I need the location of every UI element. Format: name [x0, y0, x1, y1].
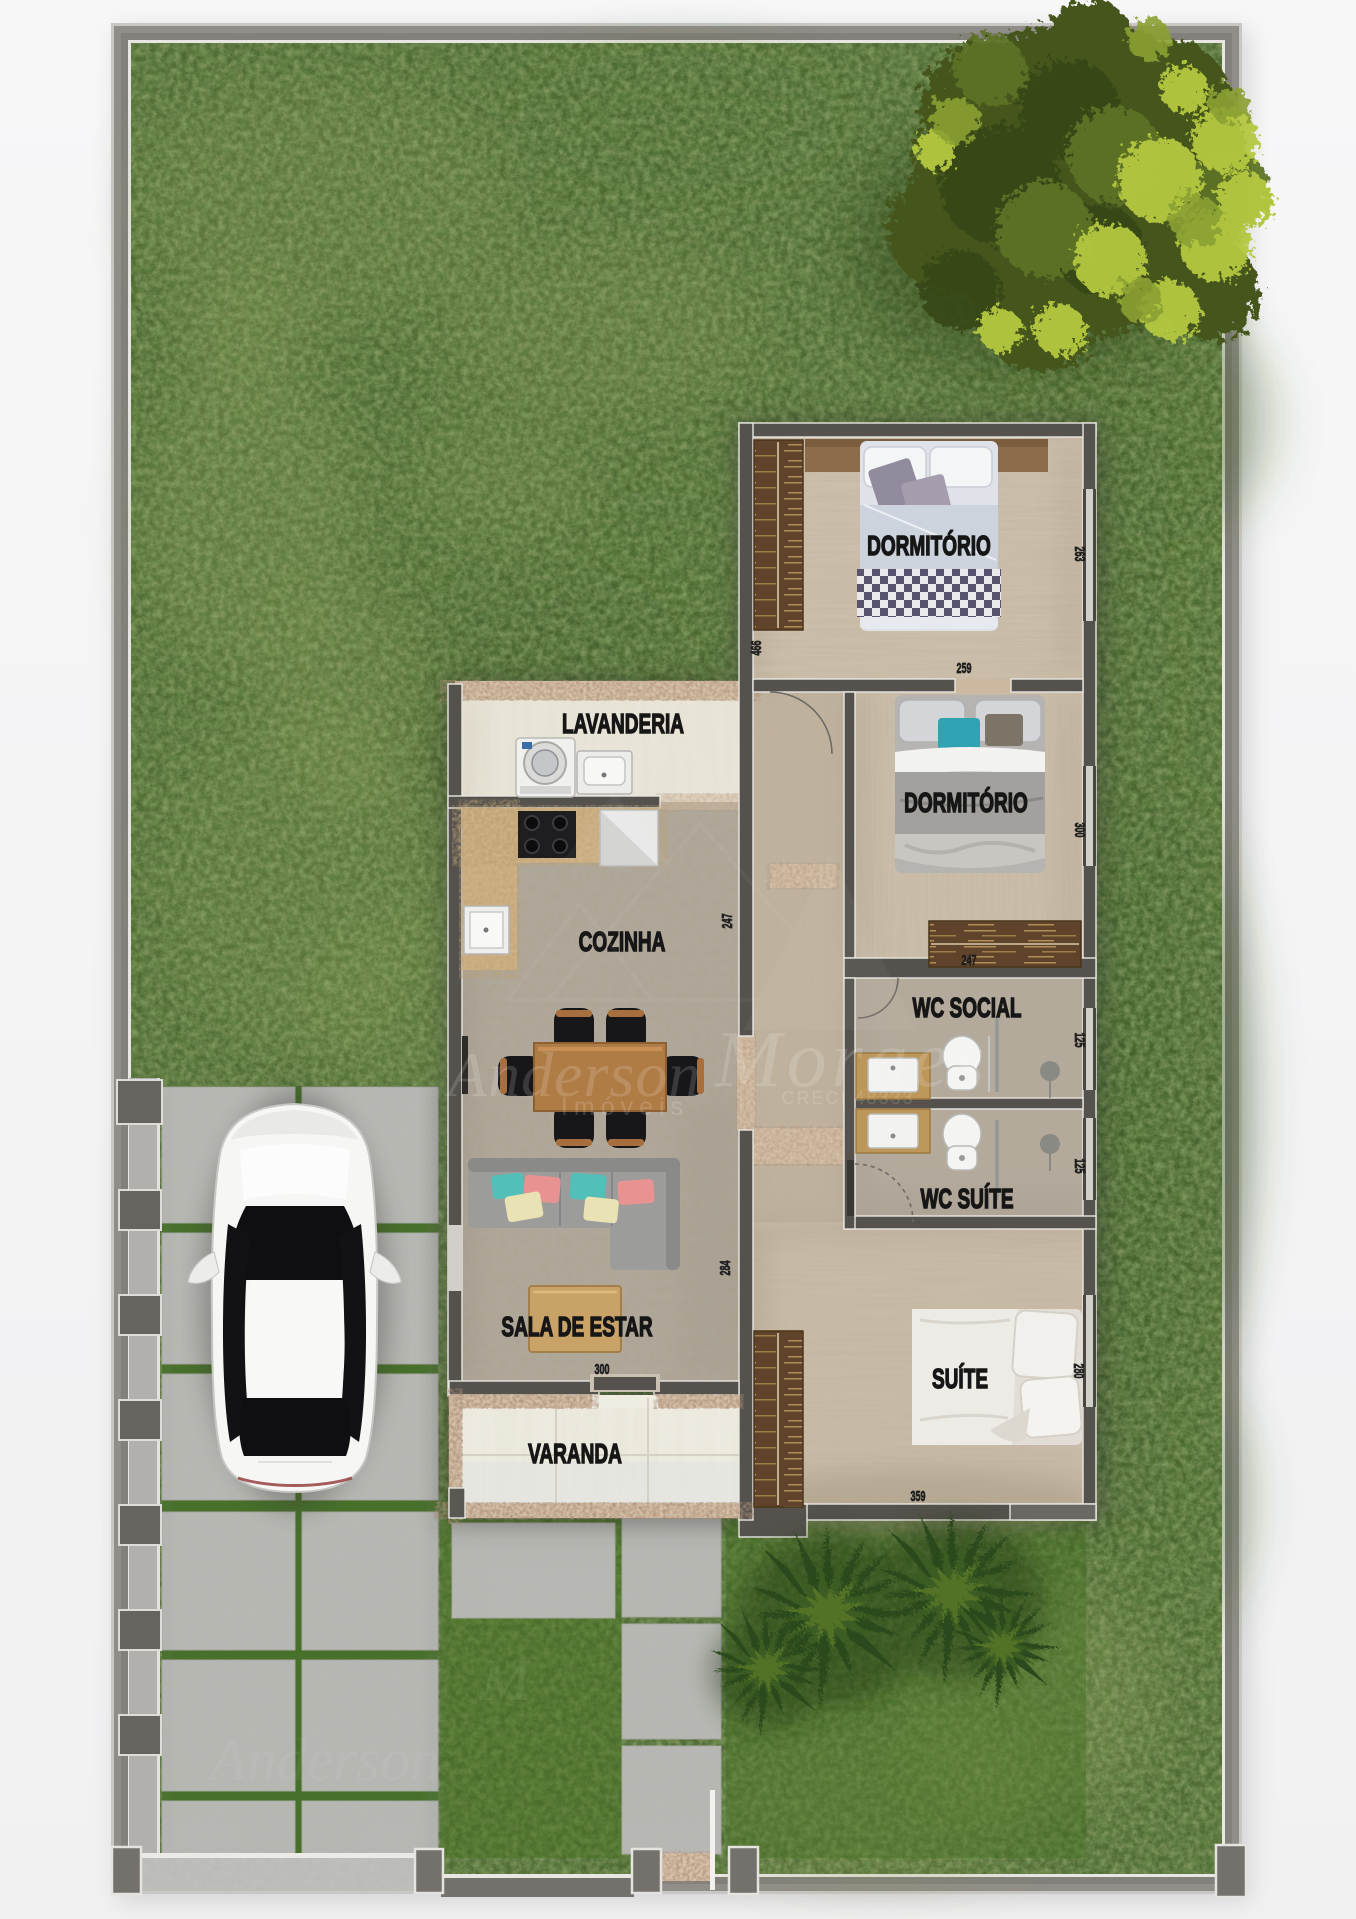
svg-text:WC SUÍTE: WC SUÍTE — [920, 1182, 1013, 1215]
svg-text:300: 300 — [595, 1361, 610, 1378]
svg-text:Imóveis: Imóveis — [561, 1093, 689, 1121]
svg-text:CRECI 48333: CRECI 48333 — [781, 1088, 914, 1108]
svg-text:COZINHA: COZINHA — [579, 926, 666, 958]
svg-text:259: 259 — [957, 660, 972, 677]
svg-text:280: 280 — [1070, 1364, 1087, 1379]
svg-text:247: 247 — [719, 913, 736, 928]
svg-text:LAVANDERIA: LAVANDERIA — [562, 708, 684, 740]
svg-text:SALA DE ESTAR: SALA DE ESTAR — [501, 1311, 652, 1343]
svg-text:284: 284 — [717, 1260, 734, 1275]
svg-text:466: 466 — [748, 640, 765, 655]
svg-text:DORMITÓRIO: DORMITÓRIO — [904, 786, 1028, 819]
svg-text:125: 125 — [1071, 1033, 1088, 1048]
svg-text:125: 125 — [1071, 1159, 1088, 1174]
svg-text:247: 247 — [962, 952, 977, 969]
svg-text:M: M — [479, 1647, 533, 1713]
svg-text:SUÍTE: SUÍTE — [932, 1362, 988, 1395]
svg-text:263: 263 — [1071, 547, 1088, 562]
svg-text:300: 300 — [1071, 823, 1088, 838]
svg-text:DORMITÓRIO: DORMITÓRIO — [867, 529, 991, 562]
svg-text:359: 359 — [911, 1488, 926, 1505]
svg-text:VARANDA: VARANDA — [528, 1438, 622, 1470]
svg-text:Anderson: Anderson — [206, 1727, 440, 1793]
